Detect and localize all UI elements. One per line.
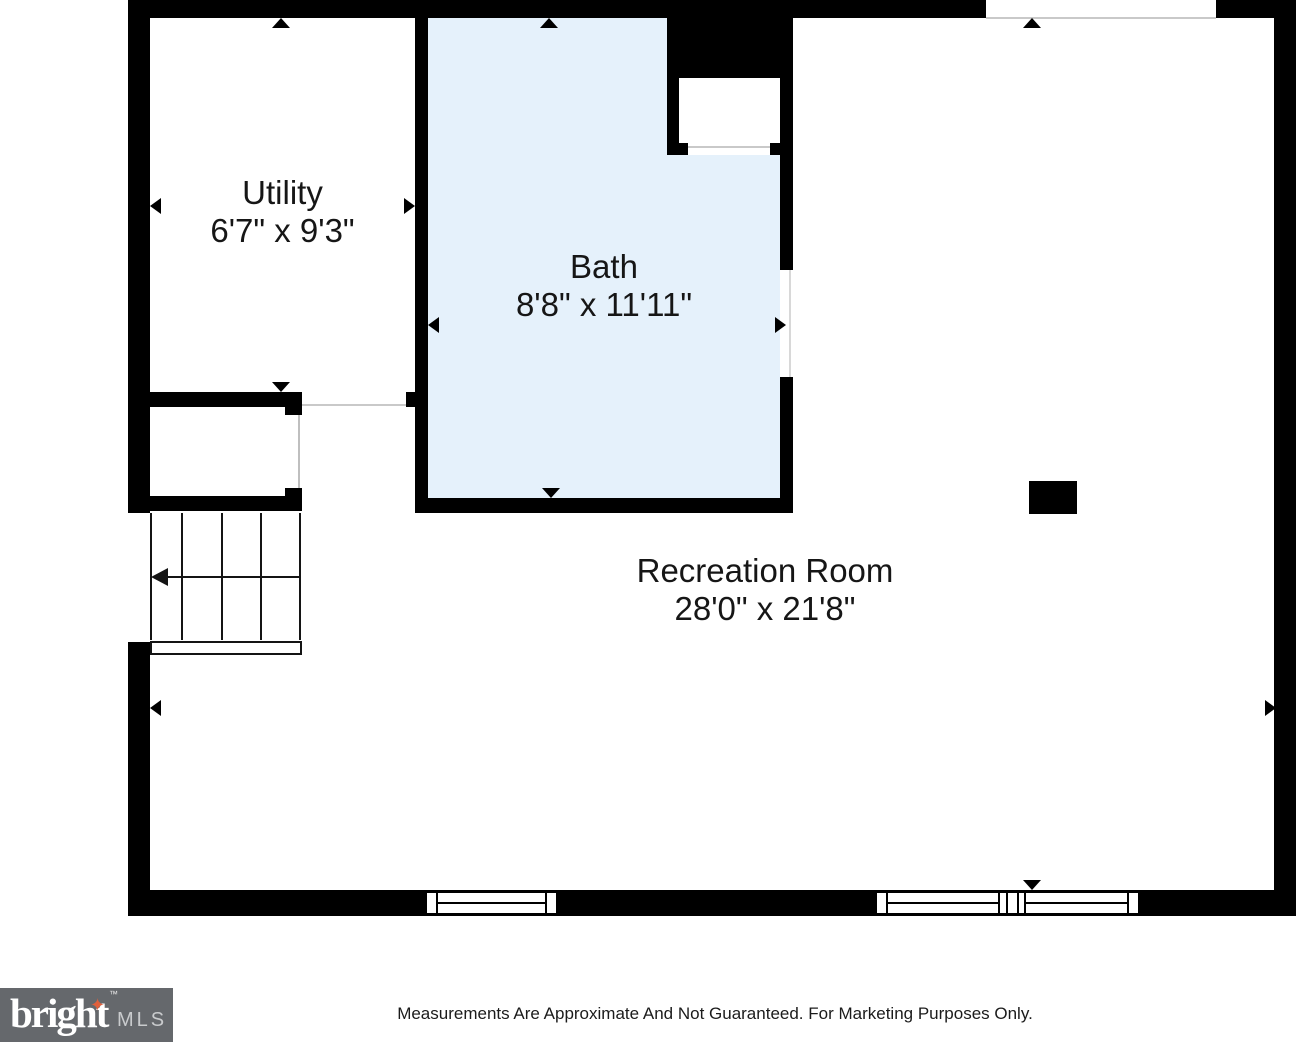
wall-bath-bottom <box>415 498 793 513</box>
room-name: Bath <box>428 248 780 286</box>
wall-right <box>1274 0 1296 916</box>
window <box>425 891 558 915</box>
window-glass-line <box>888 902 998 904</box>
window-jamb-line <box>1127 893 1129 913</box>
room-name: Utility <box>150 174 415 212</box>
trademark-symbol: ™ <box>109 989 118 999</box>
chase-opening <box>688 143 770 155</box>
room-dimensions: 6'7" x 9'3" <box>150 212 415 250</box>
floor-plan-page: Utility 6'7" x 9'3" Bath 8'8" x 11'11" R… <box>0 0 1296 1045</box>
arrow-down-icon <box>272 382 290 392</box>
stair-direction-line <box>162 576 301 578</box>
opening-line <box>986 17 1216 19</box>
window-mullion-line <box>1006 893 1008 913</box>
opening-line <box>302 404 406 406</box>
arrow-up-icon <box>540 18 558 28</box>
room-name: Recreation Room <box>450 552 1080 590</box>
room-dimensions: 28'0" x 21'8" <box>450 590 1080 628</box>
stair-landing <box>150 641 302 655</box>
window-glass-line <box>438 902 545 904</box>
arrow-down-icon <box>1023 880 1041 890</box>
star-icon: ✦ <box>90 995 105 1016</box>
support-column <box>1029 481 1077 514</box>
wall-top-left-segment <box>128 0 986 18</box>
opening-line <box>688 146 770 148</box>
arrow-up-icon <box>272 18 290 28</box>
door-jamb <box>406 392 415 407</box>
wall-left-upper-segment <box>128 0 150 513</box>
arrow-down-icon <box>542 488 560 498</box>
disclaimer-text: Measurements Are Approximate And Not Gua… <box>134 1004 1296 1024</box>
opening-line <box>789 270 791 377</box>
stair-direction-arrow-icon <box>151 568 168 586</box>
window-jamb-line <box>545 893 547 913</box>
chase-inset <box>679 78 780 143</box>
bath-room-fill <box>428 155 780 498</box>
room-label-utility: Utility 6'7" x 9'3" <box>150 174 415 250</box>
wall-bath-right-upper <box>780 155 793 270</box>
wall-closet-bottom <box>128 496 302 511</box>
room-dimensions: 8'8" x 11'11" <box>428 286 780 324</box>
window-glass-line <box>1026 902 1127 904</box>
wall-left-lower-segment <box>128 642 150 916</box>
room-label-recreation-room: Recreation Room 28'0" x 21'8" <box>450 552 1080 628</box>
wall-utility-bottom <box>128 392 302 407</box>
opening-line <box>298 415 300 488</box>
arrow-up-icon <box>1023 18 1041 28</box>
wall-utility-bath-divider <box>415 18 428 513</box>
wall-bath-right-lower <box>780 377 793 498</box>
double-window <box>875 891 1140 915</box>
bath-room-fill <box>428 18 667 155</box>
window-mullion-line <box>1017 893 1019 913</box>
arrow-right-icon <box>1265 700 1276 716</box>
room-label-bath: Bath 8'8" x 11'11" <box>428 248 780 324</box>
arrow-left-icon <box>150 700 161 716</box>
window-jamb-line <box>998 893 1000 913</box>
door-jamb <box>285 488 302 511</box>
door-jamb <box>285 392 302 415</box>
